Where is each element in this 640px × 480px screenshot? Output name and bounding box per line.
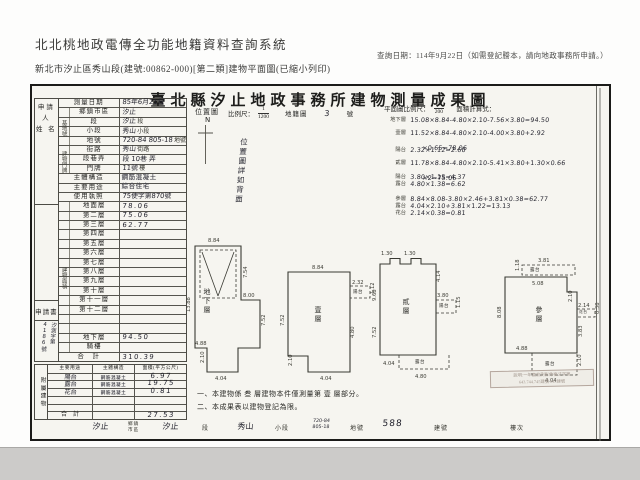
floor-label: 第二層 bbox=[70, 212, 120, 220]
floor-area-row: 第七層 bbox=[59, 259, 186, 268]
street-label: 街路 bbox=[70, 146, 120, 154]
floor-area-group-label: 建物面積 bbox=[59, 205, 69, 351]
section-value: 汐止 bbox=[122, 117, 136, 126]
section-suffix: 段 bbox=[137, 119, 143, 125]
calc-expr: 3.80×1.15=4.37 bbox=[410, 174, 466, 181]
annex-structure: 鋼筋混凝土 bbox=[93, 374, 135, 381]
floor-area-row: 騎樓 bbox=[59, 343, 186, 352]
floor-area-row bbox=[59, 315, 186, 324]
annex-structure: 鋼筋混凝土 bbox=[93, 381, 135, 388]
plan-name-basement: 地下層 bbox=[202, 288, 212, 315]
annex-use: 花台 bbox=[64, 389, 77, 397]
document-info: 新北市汐止區秀山段(建號:00862-000)[第二類]建物平面圖(已縮小列印) bbox=[35, 62, 330, 75]
dim-label: 7.52 bbox=[280, 314, 286, 326]
dim-label: 2.10 bbox=[577, 354, 583, 366]
scale-fraction: 1 1200 bbox=[258, 106, 269, 120]
plan-name-floor1: 壹層 bbox=[313, 306, 323, 324]
dim-label: 9.68 bbox=[372, 289, 378, 301]
structure-value: 鋼筋混凝土 bbox=[122, 174, 157, 181]
left-table: 申請人 姓 名 申請書 汐測字第4186號 基地號 建物門牌 建物面積 測量日期… bbox=[34, 98, 187, 362]
calc-expr: 4.80×1.38=6.62 bbox=[410, 181, 466, 188]
strip-section-value: 汐止 bbox=[162, 421, 179, 432]
floor-label: 第五層 bbox=[70, 240, 120, 248]
floor-area-value: 78.06 bbox=[122, 202, 150, 211]
addr-number-row: 門牌 11號樓 bbox=[59, 165, 186, 174]
dim-label: 2.32 bbox=[352, 280, 364, 286]
balcony-tag: 陽台 bbox=[439, 303, 449, 309]
strip-floor-label: 樓次 bbox=[510, 423, 524, 432]
floor-label: 第十層 bbox=[70, 287, 120, 295]
annex-structure: 鋼筋混凝土 bbox=[93, 389, 135, 396]
town-label: 鄉鎮市區 bbox=[70, 108, 120, 116]
calc-label: 陽台 bbox=[384, 174, 406, 181]
license-value: 75使字第870號 bbox=[122, 192, 172, 201]
door-number-label: 門牌 bbox=[70, 165, 120, 173]
floor-area-row: 第十二層 bbox=[59, 306, 186, 315]
terrace-tag: 露台 bbox=[545, 361, 555, 367]
floor-area-row: 第六層 bbox=[59, 249, 186, 258]
floor-area-value: 94.50 bbox=[122, 333, 150, 342]
annex-header-structure: 主體構造 bbox=[93, 365, 135, 373]
note-2: 二、本成果表以建物登記為限。 bbox=[197, 402, 302, 412]
applicant-label: 申請人 姓 名 bbox=[35, 99, 58, 205]
flowerbox-tag: 花台 bbox=[579, 310, 588, 315]
floor-area-row: 第三層 62.77 bbox=[59, 221, 186, 230]
floor-area-total-row: 合 計 310.39 bbox=[59, 353, 186, 362]
street-suffix: 街路 bbox=[137, 147, 149, 153]
lane-value: 段 10巷 弄 bbox=[122, 155, 156, 164]
scale-denominator: 1200 bbox=[258, 114, 269, 120]
plan-name-floor3: 參層 bbox=[534, 306, 544, 324]
annex-use: 露台 bbox=[64, 381, 77, 389]
floor-total-label: 合 計 bbox=[59, 353, 120, 362]
dim-label: 4.80 bbox=[350, 326, 356, 338]
strip-town-value: 汐止 bbox=[92, 421, 109, 432]
strip-section-label: 段 bbox=[202, 423, 209, 432]
application-number: 汐測字第4186號 bbox=[38, 321, 57, 361]
dim-label: 4.80 bbox=[415, 374, 427, 380]
note-1: 一、本建物係 叁 層建物本件僅測量第 壹 層部分。 bbox=[197, 389, 364, 399]
dim-label: 4.88 bbox=[516, 346, 528, 352]
floor-label: 第十一層 bbox=[70, 296, 120, 304]
usage-value: 綜合住宅 bbox=[122, 183, 150, 190]
query-date: 查詢日期：114年9月22日（如需登記謄本，請向地政事務所申請。） bbox=[377, 50, 608, 61]
lot-suffix: 地號 bbox=[174, 138, 186, 144]
floor-area-row: 第十層 bbox=[59, 287, 186, 296]
floor-area-value: 62.77 bbox=[122, 221, 150, 230]
subsection-suffix: 小段 bbox=[137, 129, 149, 135]
dim-label: 4.04 bbox=[320, 376, 332, 382]
scale-numerator: 1 bbox=[258, 106, 269, 114]
map-sheet-number: 3 bbox=[324, 109, 330, 118]
balcony-tag: 陽台 bbox=[353, 289, 363, 295]
cadastral-map-label: 地籍圖 bbox=[285, 108, 308, 118]
location-scale-line: 比例尺： 1 1200 地籍圖 3 號 bbox=[228, 106, 353, 120]
floor-total-value: 310.39 bbox=[122, 353, 156, 362]
compass-icon bbox=[198, 125, 213, 164]
strip-building-number: 588 bbox=[382, 419, 403, 429]
dim-label: 7.52 bbox=[261, 314, 267, 326]
survey-date-value: 85年6月21日 bbox=[122, 98, 165, 107]
calc-expr: 2.14×0.38=0.81 bbox=[410, 210, 466, 217]
floor-label: 第六層 bbox=[70, 249, 120, 257]
scale-label: 比例尺： bbox=[228, 108, 254, 118]
calc-label: 陽台 bbox=[384, 147, 406, 154]
terrace-tag: 露台 bbox=[530, 267, 540, 273]
lane-label: 段巷弄 bbox=[70, 155, 120, 163]
strip-subsection-value: 秀山 bbox=[237, 421, 254, 432]
calc-expr: 8.84×8.08-3.80×2.46+3.81×0.38=62.77 bbox=[410, 196, 548, 203]
annex-body: 主要用途 主體構造 面積(平方公尺) 陽台 鋼筋混凝土 6.97 露台 鋼筋混凝… bbox=[48, 365, 186, 419]
floor-label: 第十二層 bbox=[70, 306, 120, 314]
terrace-tag: 露台 bbox=[415, 359, 425, 365]
dim-label: 2.10 bbox=[288, 354, 294, 366]
calc-label: 露台 bbox=[384, 203, 406, 210]
map-sheet-suffix: 號 bbox=[347, 108, 354, 118]
left-table-col-a: 申請人 姓 名 申請書 汐測字第4186號 bbox=[35, 99, 59, 361]
dim-label: 4.04 bbox=[215, 376, 227, 382]
section-label: 段 bbox=[70, 118, 120, 126]
lot-value: 720-84 805-18 bbox=[122, 136, 173, 145]
dim-label: 8.00 bbox=[243, 293, 255, 299]
subsection-label: 小段 bbox=[70, 127, 120, 135]
annex-structure bbox=[93, 397, 135, 404]
floor-area-row: 第十一層 bbox=[59, 296, 186, 305]
area-calculations: 地下層15.08×8.84-4.80×2.10-7.56×3.80=94.50 … bbox=[384, 86, 610, 346]
license-label: 使用執照 bbox=[59, 193, 120, 201]
calc-expr: 4.04×2.10+3.81×1.22=13.13 bbox=[410, 203, 511, 210]
floor-label: 第九層 bbox=[70, 277, 120, 285]
floor-label: 地下層 bbox=[70, 334, 120, 342]
location-back-note: 位置圖詳如背面 bbox=[233, 138, 250, 205]
lot-label: 地號 bbox=[70, 137, 120, 145]
floor-label: 第三層 bbox=[70, 221, 120, 229]
annex-group-label: 附屬建物 bbox=[35, 365, 48, 419]
floor-area-row: 第四層 bbox=[59, 230, 186, 239]
site-group-label: 基地號 bbox=[59, 109, 69, 147]
survey-result-form: 8.84 13.88 7.54 8.00 7.52 4.88 2.10 4.04… bbox=[30, 84, 611, 441]
strip-building-label: 建號 bbox=[434, 423, 448, 432]
floor-label bbox=[70, 324, 120, 332]
system-title: 北北桃地政電傳全功能地籍資料查詢系統 bbox=[35, 34, 287, 53]
door-number-suffix: 樓 bbox=[139, 166, 145, 172]
footer-strip: 汐止 鄉鎮 市區 汐止 段 秀山 小段 720-84 805-18 地號 588… bbox=[32, 417, 609, 439]
annex-area: 0.81 bbox=[150, 388, 172, 396]
query-system-page: 北北桃地政電傳全功能地籍資料查詢系統 查詢日期：114年9月22日（如需登記謄本… bbox=[0, 0, 640, 480]
survey-date-label: 測量日期 bbox=[59, 99, 120, 107]
floor-area-row: 第八層 bbox=[59, 268, 186, 277]
applicant-empty-cell bbox=[35, 205, 58, 301]
strip-subsection-label: 小段 bbox=[275, 423, 289, 432]
street-value: 秀山 bbox=[122, 145, 136, 154]
annex-header-use: 主要用途 bbox=[48, 365, 93, 373]
floor-label: 第四層 bbox=[70, 230, 120, 238]
application-label: 申請書 bbox=[35, 301, 58, 321]
calc-label: 壹層 bbox=[384, 130, 406, 137]
annex-table: 附屬建物 主要用途 主體構造 面積(平方公尺) 陽台 鋼筋混凝土 6.97 露台 bbox=[34, 364, 187, 420]
dim-label: 7.54 bbox=[243, 266, 249, 278]
calc-label: 露台 bbox=[384, 181, 406, 188]
strip-lot-label: 地號 bbox=[350, 423, 364, 432]
calc-expr: 11.78×8.84-4.80×2.10-5.41×3.80+1.30×0.66 bbox=[410, 160, 566, 167]
strip-town-label: 鄉鎮 市區 bbox=[128, 421, 139, 432]
dim-label: 7.52 bbox=[372, 326, 378, 338]
annex-structure bbox=[93, 405, 135, 412]
left-table-main: 基地號 建物門牌 建物面積 測量日期 85年6月21日 鄉鎮市區 汐止 段 汐止… bbox=[59, 99, 186, 361]
dim-label: 4.04 bbox=[383, 361, 395, 367]
calc-label: 花台 bbox=[384, 210, 406, 217]
plan-name-floor2: 貳層 bbox=[401, 298, 411, 316]
floor-label bbox=[70, 315, 120, 323]
subsection-value: 秀山 bbox=[122, 127, 136, 136]
floor-area-row: 第五層 bbox=[59, 240, 186, 249]
floor-label: 地面層 bbox=[70, 202, 120, 210]
floor-area-value: 75.06 bbox=[122, 211, 150, 220]
floor-label: 騎樓 bbox=[70, 343, 120, 351]
dim-label: 1.12 bbox=[370, 282, 376, 294]
bottom-gray-bar bbox=[0, 447, 640, 480]
calc-label: 參層 bbox=[384, 196, 406, 203]
town-value: 汐止 bbox=[122, 108, 136, 117]
calc-label: 貳層 bbox=[384, 160, 406, 167]
dim-label: 2.10 bbox=[200, 351, 206, 363]
calc-expr: 2.32×1.12=2.60 bbox=[410, 147, 466, 154]
strip-lot-values: 720-84 805-18 bbox=[312, 419, 330, 431]
faint-stamp: 說明:一年度航測影像複丈字第 643.744.745建號 843建號 bbox=[490, 369, 594, 388]
calc-label: 地下層 bbox=[384, 117, 406, 124]
door-number-value: 11號 bbox=[122, 164, 138, 173]
annex-use: 陽台 bbox=[64, 374, 77, 382]
dim-label: 8.84 bbox=[312, 265, 324, 271]
floor-label: 第八層 bbox=[70, 268, 120, 276]
usage-label: 主要用途 bbox=[59, 184, 120, 192]
floor-label: 第七層 bbox=[70, 259, 120, 267]
dim-label: 8.84 bbox=[208, 238, 220, 244]
floor-area-row: 第九層 bbox=[59, 277, 186, 286]
address-group-label: 建物門牌 bbox=[59, 147, 69, 176]
north-indicator: N bbox=[205, 116, 210, 124]
stamp-line-2: 643.744.745建號 843建號 bbox=[491, 377, 593, 386]
dim-label: 4.88 bbox=[195, 341, 207, 347]
floor-area-row: 地下層 94.50 bbox=[59, 334, 186, 343]
calc-expr: 11.52×8.84-4.80×2.10-4.00×3.80+2.92 bbox=[410, 130, 545, 137]
calc-expr: 15.08×8.84-4.80×2.10-7.56×3.80=94.50 bbox=[410, 117, 550, 124]
